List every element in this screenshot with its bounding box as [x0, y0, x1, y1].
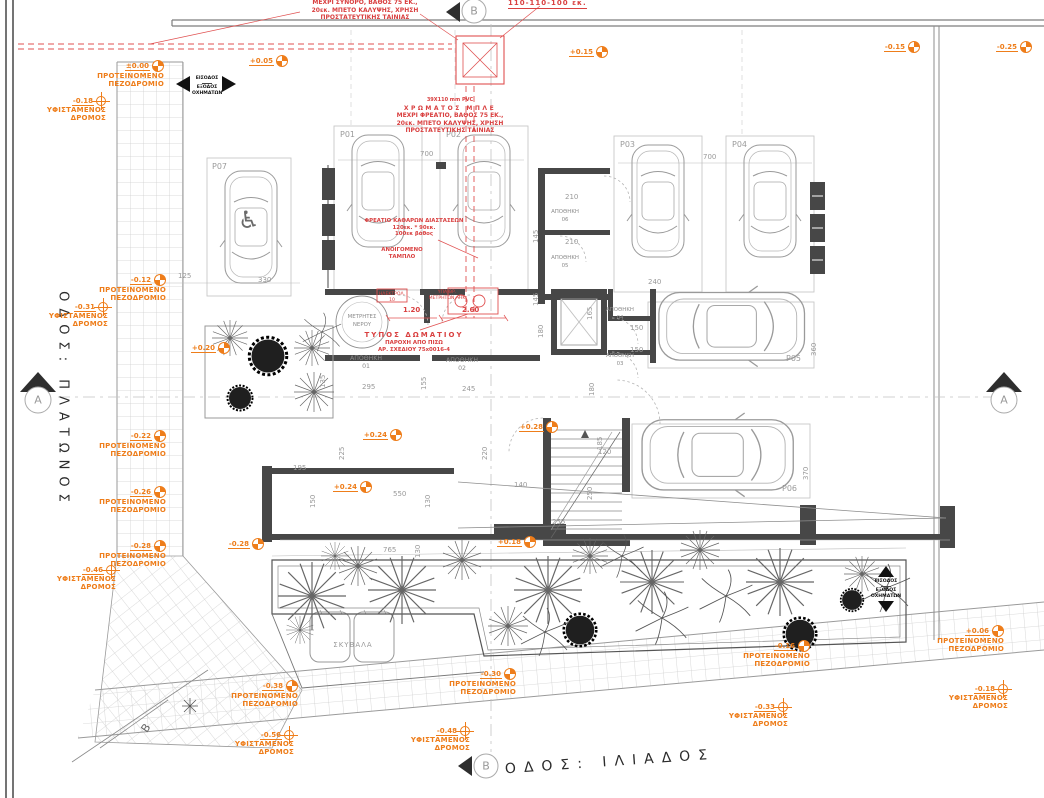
- level-marker-sidewalk-000: ±0.00 ΠΡΟΤΕΙΝΟΜΕΝΟΠΕΖΟΔΡΟΜΙΟ: [76, 60, 164, 88]
- benchmark-icon: [154, 486, 166, 498]
- red-note-ahk: ΥΠΑΙΘΡ.ΜΕΤΡΗΤΩΝ ΑΗΚ: [424, 290, 470, 301]
- benchmark-icon: [798, 640, 810, 652]
- level-marker-point-024b: +0.24: [284, 481, 372, 493]
- benchmark-icon: [154, 540, 166, 552]
- room-label-trash: ΣΚΥΒΑΛΑ: [318, 642, 388, 650]
- dim-195: 195: [293, 464, 306, 472]
- dim-255: 255: [552, 518, 565, 526]
- dim-225: 225: [338, 447, 346, 460]
- street-edge-right: [934, 26, 939, 640]
- level-marker-sidewalk-028: -0.28 ΠΡΟΤΕΙΝΟΜΕΝΟΠΕΖΟΔΡΟΜΙΟ: [78, 540, 166, 568]
- dim-150-a: 150: [630, 324, 643, 332]
- level-marker-sidewalk-016: -0.16 ΠΡΟΤΕΙΝΟΜΕΝΟΠΕΖΟΔΡΟΜΙΟ: [722, 640, 810, 668]
- level-marker-road-018b: -0.18 ΥΦΙΣΤΑΜΕΝΟΣΔΡΟΜΟΣ: [920, 684, 1008, 710]
- section-marker-b-top: B: [470, 5, 478, 18]
- dim-150-b: 150: [630, 346, 643, 354]
- dim-125: 125: [178, 272, 191, 280]
- benchmark-icon: [504, 668, 516, 680]
- crosshair-icon: [998, 684, 1008, 694]
- section-marker-b-bottom: B: [482, 760, 490, 773]
- room-label-storage-05: ΑΠΟΘΗΚΗ05: [537, 255, 593, 270]
- benchmark-icon: [390, 429, 402, 441]
- red-note-top-right: 110-110-100 εκ.: [508, 0, 587, 9]
- crosshair-icon: [96, 96, 106, 106]
- dim-295: 295: [362, 383, 375, 391]
- level-marker-sidewalk-012: -0.12 ΠΡΟΤΕΙΝΟΜΕΝΟΠΕΖΟΔΡΟΜΙΟ: [78, 274, 166, 302]
- red-note-elec: ΗΛΕΚΤΡΟΛ. 10: [377, 292, 407, 303]
- frame-lines: [6, 0, 13, 798]
- benchmark-icon: [152, 60, 164, 72]
- dim-130-b: 130: [414, 545, 422, 558]
- crosshair-icon: [284, 730, 294, 740]
- section-marker-a-right: A: [1000, 394, 1008, 407]
- level-marker-point-018: +0.18: [448, 536, 536, 548]
- crosshair-icon: [460, 726, 470, 736]
- crosshair-icon: [106, 565, 116, 575]
- dim-245: 245: [462, 385, 475, 393]
- sidewalk-hatch-left: [117, 62, 183, 556]
- dim-165: 165: [586, 307, 594, 320]
- dim-220: 220: [481, 447, 489, 460]
- level-marker-sidewalk-026: -0.26 ΠΡΟΤΕΙΝΟΜΕΝΟΠΕΖΟΔΡΟΜΙΟ: [78, 486, 166, 514]
- dim-765: 765: [383, 546, 396, 554]
- dim-330: 330: [258, 276, 271, 284]
- trash-bins: [310, 610, 394, 662]
- red-note-pvc: 39Χ110 mm PVC ΧΡΩΜΑΤΟΣ ΜΠΛΕ ΜΕΧΡΙ ΦΡΕΑΤΙ…: [355, 97, 545, 135]
- room-label-storage-03: ΑΠΟΘΗΚΗ03: [592, 353, 648, 368]
- dim-150-c: 150: [309, 495, 317, 508]
- dim-240: 240: [648, 278, 661, 286]
- benchmark-icon: [252, 538, 264, 550]
- dim-180-b: 180: [588, 383, 596, 396]
- level-marker-sidewalk-038: -0.38 ΠΡΟΤΕΙΝΟΜΕΝΟΠΕΖΟΔΡΟΜΙΟ: [210, 680, 298, 708]
- level-marker-road-048: -0.48 ΥΦΙΣΤΑΜΕΝΟΣΔΡΟΜΟΣ: [382, 726, 470, 752]
- benchmark-icon: [1020, 41, 1032, 53]
- parking-label-p01: P01: [340, 130, 355, 139]
- benchmark-icon: [286, 680, 298, 692]
- parking-label-p07: P07: [212, 162, 227, 171]
- dim-135: 135: [319, 375, 327, 388]
- benchmark-icon: [276, 55, 288, 67]
- dim-210-b: 210: [565, 238, 578, 246]
- level-marker-point-020: +0.20: [142, 342, 230, 354]
- level-marker-road-031: -0.31 ΥΦΙΣΤΑΜΕΝΟΣΔΡΟΜΟΣ: [20, 302, 108, 328]
- vehicle-access-right: ΕΙΣΟΔΟΣ ΕΞΟΔΟΣΟΧΗΜΑΤΩΝ: [862, 579, 910, 600]
- dim-145-a: 145: [532, 230, 540, 243]
- red-note-shaft: ΦΡΕΑΤΙΟ ΚΑΘΑΡΩΝ ΔΙΑΣΤΑΣΕΩΝ120εκ. * 90εκ.…: [352, 218, 476, 238]
- level-marker-point-015: +0.15: [520, 46, 608, 58]
- crosshair-icon: [778, 702, 788, 712]
- parking-label-p03: P03: [620, 140, 635, 149]
- level-marker-road-033: -0.33 ΥΦΙΣΤΑΜΕΝΟΣΔΡΟΜΟΣ: [700, 702, 788, 728]
- red-dim-120: 1.20: [403, 306, 420, 314]
- level-marker-sidewalk-030: -0.30 ΠΡΟΤΕΙΝΟΜΕΝΟΠΕΖΟΔΡΟΜΙΟ: [428, 668, 516, 696]
- vehicle-access-top: ΕΙΣΟΔΟΣ ΕΞΟΔΟΣΟΧΗΜΑΤΩΝ: [192, 76, 222, 97]
- benchmark-icon: [596, 46, 608, 58]
- red-note-boundary: ΜΕΧΡΙ ΣΥΝΟΡΟ, ΒΑΘΟΣ 75 ΕΚ.,20εκ. ΜΠΕΤΟ Κ…: [295, 0, 435, 22]
- dim-360: 360: [810, 343, 818, 356]
- dim-210-a: 210: [565, 193, 578, 201]
- level-marker-point-m028: -0.28: [176, 538, 264, 550]
- level-marker-road-056: -0.56 ΥΦΙΣΤΑΜΕΝΟΣΔΡΟΜΟΣ: [206, 730, 294, 756]
- dim-155: 155: [420, 377, 428, 390]
- benchmark-icon: [908, 41, 920, 53]
- level-marker-point-005: +0.05: [200, 55, 288, 67]
- level-marker-point-024a: +0.24: [314, 429, 402, 441]
- benchmark-icon: [218, 342, 230, 354]
- benchmark-icon: [154, 274, 166, 286]
- dim-120: 120: [598, 448, 611, 456]
- dim-250: 250: [586, 487, 594, 500]
- dim-130-a: 130: [424, 495, 432, 508]
- benchmark-icon: [360, 481, 372, 493]
- room-label-storage-02: ΑΠΟΘΗΚΗ02: [432, 357, 492, 372]
- level-marker-point-028: +0.28: [470, 421, 558, 433]
- benchmark-icon: [546, 421, 558, 433]
- red-note-room-type: ΤΥΠΟΣ ΔΩΜΑΤΙΟΥ ΠΑΡΟΧΗ ΑΠΟ ΠΙΣΩ ΑΡ. ΣΧΕΔΙ…: [350, 332, 478, 355]
- dim-180-a: 180: [537, 325, 545, 338]
- site-plan-drawing: ΟΔΟΣ: ΠΛΑΤΩΝΟΣ ΟΔΟΣ: ΙΛΙΑΔΟΣ A A B B B Ε…: [0, 0, 1044, 798]
- level-marker-road-046: -0.46 ΥΦΙΣΤΑΜΕΝΟΣΔΡΟΜΟΣ: [28, 565, 116, 591]
- dim-145-b: 145: [532, 293, 540, 306]
- cars: [220, 135, 805, 497]
- room-label-water-meters: ΜΕΤΡΗΤΕΣΝΕΡΟΥ: [334, 314, 390, 329]
- benchmark-icon: [992, 625, 1004, 637]
- crosshair-icon: [98, 302, 108, 312]
- room-label-storage-01: ΑΠΟΘΗΚΗ01: [336, 355, 396, 370]
- dim-140: 140: [514, 481, 527, 489]
- level-marker-road-018: -0.18 ΥΦΙΣΤΑΜΕΝΟΣΔΡΟΜΟΣ: [18, 96, 106, 122]
- level-marker-sidewalk-022: -0.22 ΠΡΟΤΕΙΝΟΜΕΝΟΠΕΖΟΔΡΟΜΙΟ: [78, 430, 166, 458]
- benchmark-icon: [154, 430, 166, 442]
- parking-label-p06: P06: [782, 484, 797, 493]
- dim-550: 550: [393, 490, 406, 498]
- level-marker-sidewalk-006: +0.06 ΠΡΟΤΕΙΝΟΜΕΝΟΠΕΖΟΔΡΟΜΙΟ: [916, 625, 1004, 653]
- wheelchair-icon: ♿: [238, 206, 260, 234]
- room-label-storage-04: ΑΠΟΘΗΚΗ04: [592, 307, 648, 322]
- parking-label-p05: P05: [786, 354, 801, 363]
- red-dim-260: 2.60: [462, 306, 479, 314]
- level-marker-point-m015: -0.15: [832, 41, 920, 53]
- level-marker-point-m025: -0.25: [944, 41, 1032, 53]
- dim-370: 370: [802, 467, 810, 480]
- dim-700-a: 700: [420, 150, 433, 158]
- red-note-panel: ΑΝΟΙΓΟΜΕΝΟΤΑΜΠΛΟ: [362, 247, 442, 260]
- room-label-storage-06: ΑΠΟΘΗΚΗ06: [537, 209, 593, 224]
- section-marker-a-left: A: [34, 394, 42, 407]
- benchmark-icon: [524, 536, 536, 548]
- parking-label-p04: P04: [732, 140, 747, 149]
- dim-700-b: 700: [703, 153, 716, 161]
